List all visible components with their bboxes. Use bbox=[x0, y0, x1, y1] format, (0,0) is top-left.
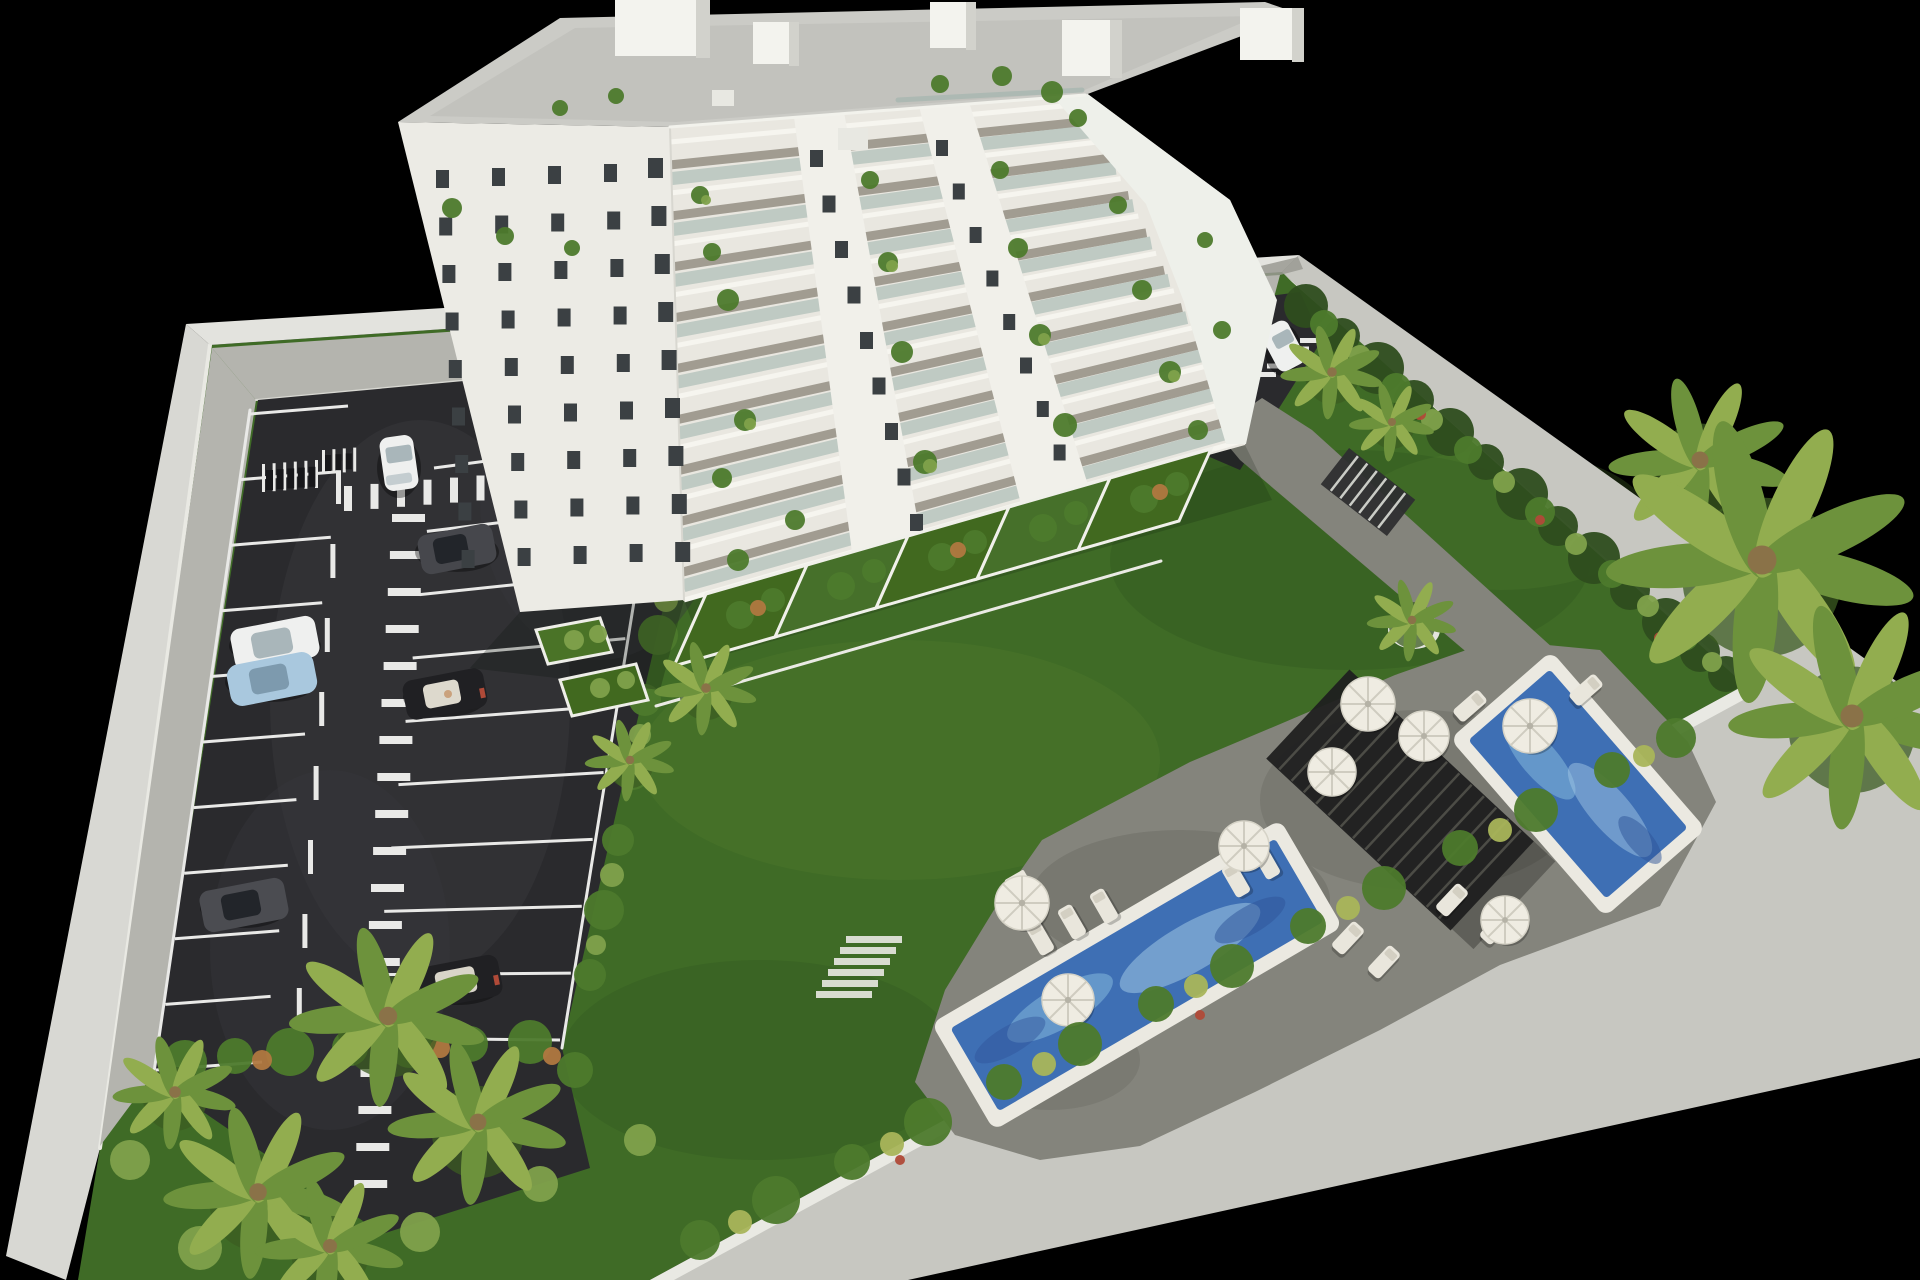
umbrella-pole bbox=[1065, 997, 1071, 1003]
balcony-plants bbox=[1132, 280, 1152, 300]
left-window-column bbox=[574, 546, 587, 564]
palm-crown bbox=[1841, 705, 1864, 728]
aisle-dash bbox=[302, 914, 307, 948]
pier-window bbox=[1003, 314, 1015, 330]
roof-terrace-plants bbox=[1041, 81, 1063, 103]
hedge-bottom-wall-light bbox=[1184, 974, 1208, 998]
roof-terrace-plants bbox=[1069, 109, 1087, 127]
hedge-bottom-wall bbox=[1138, 986, 1174, 1022]
motorcycle bbox=[287, 468, 294, 488]
hedge-bottom-wall-light bbox=[880, 1132, 904, 1156]
crosswalk-bar-horizontal bbox=[477, 476, 485, 501]
left-window-column bbox=[551, 214, 564, 232]
motorcycle bbox=[277, 469, 284, 489]
left-window-column bbox=[442, 265, 455, 283]
moto-stall-line bbox=[332, 449, 335, 473]
moto-stall-line bbox=[315, 460, 318, 488]
planter-shrubs bbox=[564, 630, 584, 650]
crosswalk-bar-vertical bbox=[371, 884, 404, 892]
palm-crown bbox=[379, 1007, 397, 1025]
stairs bbox=[834, 958, 890, 965]
hedge-flowers bbox=[1535, 515, 1545, 525]
left-window-column bbox=[508, 406, 521, 424]
aisle-dash bbox=[319, 692, 324, 726]
left-window-column bbox=[439, 218, 452, 236]
roof-box bbox=[753, 22, 793, 64]
balcony-plants bbox=[1197, 232, 1213, 248]
plot-shrubs-accent bbox=[950, 542, 966, 558]
left-window-column bbox=[548, 166, 561, 184]
roof-terrace-plants bbox=[992, 66, 1012, 86]
balcony-plants bbox=[991, 161, 1009, 179]
palm-crown bbox=[470, 1114, 487, 1131]
balcony-plants-light bbox=[1038, 333, 1050, 345]
moto-stall-line bbox=[262, 464, 265, 492]
left-window-column bbox=[620, 402, 633, 420]
shrubs-lot-right-light bbox=[586, 935, 606, 955]
left-window-column bbox=[511, 453, 524, 471]
motorcycle bbox=[266, 470, 273, 490]
stairs bbox=[828, 969, 884, 976]
plot-shrubs bbox=[1029, 514, 1057, 542]
roof-terrace-plants bbox=[496, 227, 514, 245]
balcony-plants-light bbox=[923, 459, 937, 473]
crosswalk-bar-vertical bbox=[373, 847, 406, 855]
plot-shrubs bbox=[827, 572, 855, 600]
left-window-column bbox=[558, 309, 571, 327]
hedge-bottom-wall bbox=[1656, 718, 1696, 758]
roof-box-shade bbox=[1110, 20, 1122, 78]
umbrella-pole bbox=[1527, 723, 1533, 729]
palm-crown bbox=[1388, 418, 1396, 426]
hedge-right-wall-bright bbox=[1702, 652, 1722, 672]
left-window-column bbox=[455, 455, 468, 473]
hedge-bottom-wall-light bbox=[728, 1210, 752, 1234]
plot-shrubs bbox=[862, 559, 886, 583]
left-window-column bbox=[505, 358, 518, 376]
palm-crown bbox=[626, 756, 634, 764]
crosswalk-bar-vertical bbox=[388, 588, 421, 596]
hedge-right-wall-bright bbox=[1565, 533, 1587, 555]
aisle-dash bbox=[336, 470, 341, 504]
stairs bbox=[840, 947, 896, 954]
stairs bbox=[822, 980, 878, 987]
balcony-plants bbox=[727, 549, 749, 571]
balcony-plants bbox=[712, 468, 732, 488]
left-window-column bbox=[623, 449, 636, 467]
hedge-bottom-wall bbox=[1210, 944, 1254, 988]
roof-box-shade bbox=[696, 0, 710, 58]
left-window-column bbox=[614, 307, 627, 325]
roof-box-shade bbox=[966, 2, 976, 50]
pier-window bbox=[848, 287, 861, 304]
balcony-plants bbox=[1008, 238, 1028, 258]
crosswalk-bar-vertical bbox=[386, 625, 419, 633]
motorcycle bbox=[346, 453, 352, 469]
crosswalk-bar-vertical bbox=[356, 1143, 389, 1151]
left-window-column bbox=[668, 446, 683, 466]
motorcycle bbox=[308, 467, 315, 487]
hedge-bottom-wall-light bbox=[1488, 818, 1512, 842]
shrubs-lot-right bbox=[574, 959, 606, 991]
left-window-column bbox=[672, 494, 687, 514]
balcony-plants bbox=[1109, 196, 1127, 214]
aisle-dash bbox=[330, 544, 335, 578]
left-window-column bbox=[446, 313, 459, 331]
shrubs-lot-bottom-accent bbox=[252, 1050, 272, 1070]
left-window-column bbox=[567, 451, 580, 469]
pier-window bbox=[936, 140, 948, 156]
left-window-column bbox=[626, 497, 639, 515]
moto-stall-line bbox=[353, 448, 356, 472]
pier-window bbox=[835, 241, 848, 258]
plot-shrubs-accent bbox=[750, 600, 766, 616]
site-plan-render bbox=[0, 0, 1920, 1280]
roof-box-shade bbox=[1292, 8, 1304, 62]
palm-crown bbox=[1327, 367, 1337, 377]
aisle-dash bbox=[325, 618, 330, 652]
left-window-column bbox=[502, 311, 515, 329]
crosswalk-bar-horizontal bbox=[344, 486, 352, 511]
pier-window bbox=[823, 196, 836, 213]
planter-shrubs bbox=[590, 678, 610, 698]
stairs bbox=[816, 991, 872, 998]
palm-crown bbox=[249, 1183, 267, 1201]
left-window-column bbox=[655, 254, 670, 274]
pier-window bbox=[885, 423, 898, 440]
stairs bbox=[846, 936, 902, 943]
hedge-bottom-wall-light bbox=[1032, 1052, 1056, 1076]
palm-crown bbox=[1692, 452, 1709, 469]
crosswalk-bar-horizontal bbox=[371, 484, 379, 509]
umbrella-pole bbox=[1241, 843, 1247, 849]
hedge-right-wall-light bbox=[1454, 436, 1482, 464]
pier-window bbox=[1054, 445, 1066, 461]
motorcycle bbox=[298, 468, 305, 488]
left-window-column bbox=[462, 550, 475, 568]
hedge-right-wall-bright bbox=[1637, 595, 1659, 617]
pier-window bbox=[898, 469, 911, 486]
left-window-column bbox=[651, 206, 666, 226]
palm-crown bbox=[701, 683, 711, 693]
shrubs-lot-bottom bbox=[266, 1028, 314, 1076]
balcony-plants-light bbox=[744, 418, 756, 430]
roof-box bbox=[1240, 8, 1298, 60]
plot-shrubs bbox=[1165, 472, 1189, 496]
balcony-plants bbox=[717, 289, 739, 311]
hedge-bottom-wall bbox=[1514, 788, 1558, 832]
left-window-column bbox=[675, 542, 690, 562]
balcony-plants bbox=[1188, 420, 1208, 440]
hedge-right-wall-bright bbox=[1493, 471, 1515, 493]
plot-shrubs bbox=[726, 601, 754, 629]
left-window-column bbox=[564, 404, 577, 422]
hedge-bottom-wall-light bbox=[1336, 896, 1360, 920]
planter-shrubs bbox=[589, 625, 607, 643]
shrubs-lot-right bbox=[584, 890, 624, 930]
hedge-bottom-wall bbox=[986, 1064, 1022, 1100]
umbrella-pole bbox=[1502, 917, 1508, 923]
planter-shrubs bbox=[617, 671, 635, 689]
balcony-plants bbox=[861, 171, 879, 189]
pier-window bbox=[953, 184, 965, 200]
left-window-column bbox=[518, 548, 531, 566]
balcony-plants-light bbox=[886, 260, 898, 272]
moto-stall-line bbox=[322, 450, 325, 474]
shrubs-bottom-lawn bbox=[110, 1140, 150, 1180]
left-window-column bbox=[617, 354, 630, 372]
balcony-plants-light bbox=[701, 195, 711, 205]
crosswalk-bar-vertical bbox=[392, 514, 425, 522]
left-window-column bbox=[604, 164, 617, 182]
shrubs-lot-right-light bbox=[600, 863, 624, 887]
left-window-column bbox=[561, 356, 574, 374]
plot-shrubs-accent bbox=[1152, 484, 1168, 500]
rendered-image bbox=[0, 0, 1920, 1280]
left-window-column bbox=[458, 503, 471, 521]
aisle-dash bbox=[314, 766, 319, 800]
crosswalk-bar-vertical bbox=[379, 736, 412, 744]
hedge-bottom-wall bbox=[904, 1098, 952, 1146]
moto-stall-line bbox=[294, 462, 297, 490]
roof-terrace-plants bbox=[564, 240, 580, 256]
hedge-bottom-wall bbox=[752, 1176, 800, 1224]
shrubs-lot-right bbox=[602, 824, 634, 856]
moto-stall-line bbox=[343, 448, 346, 472]
balcony-plants bbox=[703, 243, 721, 261]
moto-stall-line bbox=[273, 463, 276, 491]
left-window-column bbox=[607, 212, 620, 230]
shrubs-lot-bottom-accent bbox=[543, 1047, 561, 1065]
roof-vent bbox=[712, 90, 734, 106]
hedge-bottom-wall bbox=[1290, 908, 1326, 944]
hedge-bottom-wall-light bbox=[1633, 745, 1655, 767]
pier-window bbox=[910, 514, 923, 531]
roof-box bbox=[615, 0, 700, 56]
left-window-column bbox=[498, 263, 511, 281]
pier-window bbox=[860, 332, 873, 349]
motorcycle bbox=[335, 454, 341, 470]
crosswalk-bar-horizontal bbox=[450, 478, 458, 503]
roof-terrace-plants bbox=[442, 198, 462, 218]
hedge-flowers bbox=[1195, 1010, 1205, 1020]
roof-box bbox=[930, 2, 970, 48]
roof-box bbox=[1062, 20, 1116, 76]
plot-shrubs bbox=[1064, 501, 1088, 525]
left-window-column bbox=[665, 398, 680, 418]
hedge-bottom-wall bbox=[834, 1144, 870, 1180]
left-window-column bbox=[492, 168, 505, 186]
balcony-plants bbox=[891, 341, 913, 363]
umbrella-pole bbox=[1019, 900, 1025, 906]
shrubs-lot-bottom bbox=[557, 1052, 593, 1088]
left-window-column bbox=[449, 360, 462, 378]
left-window-column bbox=[452, 408, 465, 426]
palm-crown bbox=[169, 1086, 181, 1098]
moto-stall-line bbox=[283, 462, 286, 490]
palm-crown bbox=[323, 1239, 337, 1253]
hedge-bottom-wall bbox=[680, 1220, 720, 1260]
balcony-plants-light bbox=[1168, 370, 1180, 382]
umbrella-pole bbox=[1329, 769, 1335, 775]
shrubs-bottom-lawn bbox=[400, 1212, 440, 1252]
crosswalk-bar-vertical bbox=[377, 773, 410, 781]
motorcycle bbox=[325, 455, 331, 471]
pier-window bbox=[873, 378, 886, 395]
crosswalk-bar-vertical bbox=[358, 1106, 391, 1114]
left-window-column bbox=[658, 302, 673, 322]
left-window-column bbox=[570, 499, 583, 517]
crosswalk-bar-vertical bbox=[375, 810, 408, 818]
balcony-plants bbox=[785, 510, 805, 530]
roof-terrace-plants bbox=[552, 100, 568, 116]
lawn-shade bbox=[560, 960, 960, 1160]
balcony-plants bbox=[1053, 413, 1077, 437]
pier-window bbox=[1037, 401, 1049, 417]
palm-crown bbox=[1748, 546, 1777, 575]
hedge-bottom-wall bbox=[1058, 1022, 1102, 1066]
moto-stall-line bbox=[304, 461, 307, 489]
aisle-dash bbox=[308, 840, 313, 874]
left-window-column bbox=[662, 350, 677, 370]
umbrella-pole bbox=[1421, 733, 1427, 739]
driver bbox=[444, 690, 452, 698]
left-window-column bbox=[648, 158, 663, 178]
crosswalk-bar-horizontal bbox=[424, 480, 432, 505]
umbrella-pole bbox=[1365, 701, 1371, 707]
hedge-bottom-wall bbox=[1594, 752, 1630, 788]
left-window-column bbox=[436, 170, 449, 188]
pier-window bbox=[810, 150, 823, 167]
hedge-flowers bbox=[895, 1155, 905, 1165]
roof-terrace-plants bbox=[608, 88, 624, 104]
pier-window bbox=[970, 227, 982, 243]
plot-shrubs bbox=[963, 530, 987, 554]
roof-vent bbox=[838, 128, 868, 150]
roof-box-shade bbox=[789, 22, 799, 66]
left-window-column bbox=[630, 544, 643, 562]
roof-terrace-plants bbox=[931, 75, 949, 93]
crosswalk-bar-vertical bbox=[369, 921, 402, 929]
hedge-bottom-wall bbox=[1442, 830, 1478, 866]
pier-window bbox=[1020, 358, 1032, 374]
shrubs-bottom-lawn bbox=[624, 1124, 656, 1156]
left-window-column bbox=[554, 261, 567, 279]
hedge-bottom-wall bbox=[1362, 866, 1406, 910]
palm-crown bbox=[1408, 616, 1416, 624]
left-window-column bbox=[610, 259, 623, 277]
pier-window bbox=[986, 271, 998, 287]
crosswalk-bar-vertical bbox=[384, 662, 417, 670]
balcony-plants bbox=[1213, 321, 1231, 339]
left-window-column bbox=[514, 501, 527, 519]
